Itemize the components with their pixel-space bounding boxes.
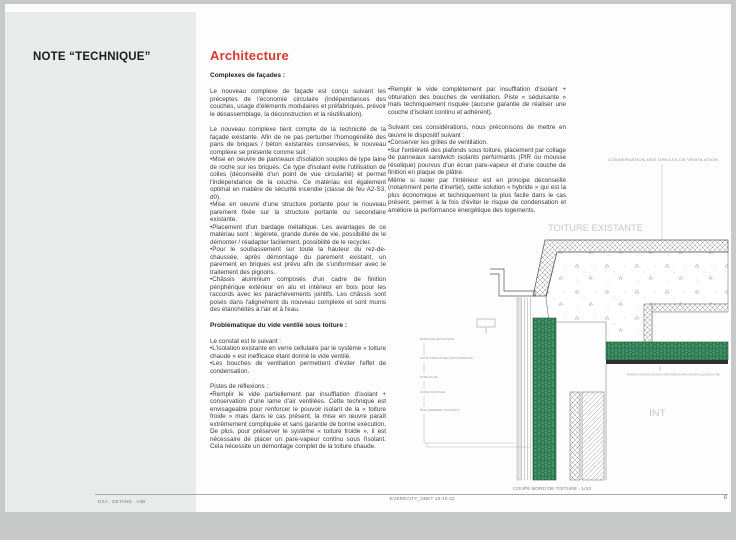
cladding-substructure-lines [525, 298, 531, 480]
section-heading: Architecture [210, 48, 386, 63]
bullet-item: •Les bouches de ventilation permettent d… [210, 360, 386, 375]
concrete-slab [546, 252, 728, 342]
layer-label-laine: LAINE DE ROCHE [420, 390, 445, 394]
ventilation-note-label: CONSERVATION DES GRILLES DE VENTILATION [608, 158, 719, 162]
panel-label: PANNEAUX SANDWICH ISOLANTS PERFORMANTS+P… [627, 373, 720, 377]
paragraph: Pistes de réflexions : [210, 383, 386, 391]
footer-credits: DXA . DETANG . A3B [98, 499, 146, 504]
interior-label: INT [649, 408, 667, 418]
left-panel [5, 12, 196, 512]
existing-finish-hatch [570, 392, 580, 480]
paragraph: Le nouveau complexe de façade est conçu … [210, 88, 386, 118]
bullet-item: •Remplir le vide complètement par insuff… [388, 86, 566, 116]
subhead-facades: Complexes de façades : [210, 72, 386, 80]
beam-face-hatch [644, 304, 652, 342]
bullet-item: •Châssis aluminium composés d'un cadre d… [210, 276, 386, 314]
existing-masonry-hatch [582, 392, 604, 480]
plaster-board-layer [606, 360, 728, 364]
ceiling-finish-hatch [652, 304, 728, 312]
footer-page-number: 6 [724, 495, 727, 501]
subhead-vide-ventile: Problématique du vide ventilé sous toitu… [210, 322, 386, 330]
layer-labels: BARDAGE METALLIQUE SOUS-STRUCTURE POUR B… [420, 337, 473, 412]
footer-project-ref: EVERECITY_GBET 18-10-22 [390, 496, 455, 501]
bullet-item: •Mise en oeuvre de panneaux d'isolation … [210, 156, 386, 201]
paragraph: Suivant ces considérations, nous préconi… [388, 124, 566, 139]
drawing-title-toiture: TOITURE EXISTANTE [548, 223, 643, 234]
bullet-item: •Placement d'un bardage métallique. Les … [210, 224, 386, 247]
metal-cladding-layer [517, 298, 522, 480]
gutter-profile [490, 269, 535, 296]
roof-detail-drawing: CONSERVATION DES GRILLES DE VENTILATION … [420, 140, 731, 495]
bullet-item: •Mise en oeuvre d'une structure portante… [210, 201, 386, 224]
layer-label-substructure: SOUS-STRUCTURE POUR BARDAGE [420, 356, 473, 360]
paragraph: Le nouveau complexe tient compte de la t… [210, 126, 386, 156]
layer-label-parepluie: PARE PLUIE [420, 375, 437, 379]
paragraph: Le constat est le suivant : [210, 338, 386, 346]
sandwich-panel-insulation [606, 342, 728, 360]
text-column-1: Architecture Complexes de façades : Le n… [210, 48, 386, 451]
bullet-item: •Pour le soubassement sur toute la haute… [210, 246, 386, 276]
note-title: NOTE “TECHNIQUE” [33, 51, 151, 63]
detail-marker-box [477, 319, 495, 327]
bullet-item: •Remplir le vide partiellement par insuf… [210, 391, 386, 451]
footer-rule [95, 494, 728, 495]
page-canvas: NOTE “TECHNIQUE” Architecture Complexes … [0, 0, 736, 540]
wall-insulation-green [533, 318, 556, 480]
layer-label-parement: MUR PAREMENT EXISTANT [420, 408, 460, 412]
bullet-item: •L'isolation existante en verre cellulai… [210, 345, 386, 360]
layer-label-bardage: BARDAGE METALLIQUE [420, 337, 454, 341]
drawing-caption: COUPE BORD DE TOITURE - 1/10 [513, 486, 591, 491]
